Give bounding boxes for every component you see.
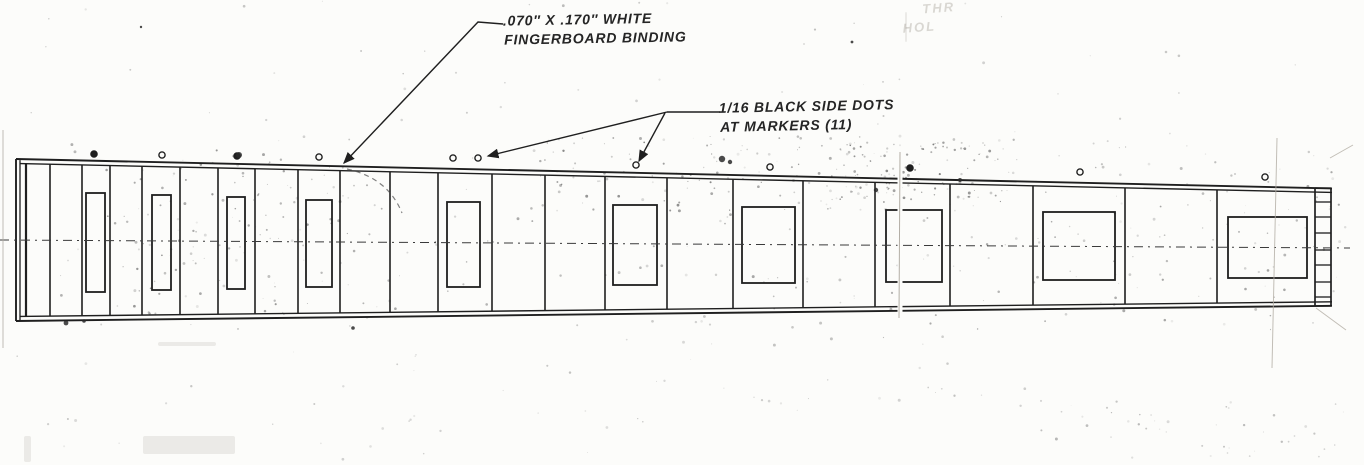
- side-dot: [450, 155, 456, 161]
- speck: [777, 161, 778, 162]
- speck: [768, 278, 769, 279]
- speck: [711, 343, 712, 344]
- speck: [888, 188, 889, 189]
- speck: [832, 199, 833, 200]
- speck: [990, 192, 993, 195]
- speck: [293, 352, 294, 353]
- speck: [826, 185, 827, 186]
- speck: [204, 234, 207, 237]
- speck: [703, 167, 704, 168]
- speck: [347, 233, 348, 234]
- speck: [1120, 202, 1122, 204]
- speck: [961, 142, 963, 144]
- speck: [1234, 173, 1236, 175]
- speck: [658, 79, 660, 81]
- speck: [599, 180, 601, 182]
- side-dots-leader-arrow-2: [639, 113, 665, 161]
- speck: [114, 222, 117, 225]
- speck: [729, 210, 730, 211]
- speck: [1338, 240, 1341, 243]
- speck: [1081, 416, 1083, 418]
- speck: [728, 191, 730, 193]
- speck: [260, 234, 261, 235]
- speck: [322, 281, 323, 282]
- speck: [838, 278, 841, 281]
- speck: [893, 189, 896, 192]
- speck: [693, 138, 694, 139]
- speck: [1165, 51, 1168, 54]
- speck: [946, 362, 949, 365]
- speck: [677, 204, 680, 207]
- side-dot: [1262, 174, 1268, 180]
- speck: [539, 160, 541, 162]
- speck: [278, 238, 279, 239]
- speck: [269, 161, 271, 163]
- speck: [577, 89, 579, 91]
- speck: [791, 166, 793, 168]
- inlay-marker: [227, 197, 245, 289]
- speck: [1119, 118, 1121, 120]
- speck: [138, 208, 139, 209]
- side-dot: [633, 162, 639, 168]
- speck: [853, 147, 856, 150]
- fingerboard-outline: [0, 159, 1350, 321]
- speck: [853, 170, 856, 173]
- speck: [529, 4, 530, 5]
- speck: [239, 246, 241, 248]
- speck: [462, 283, 464, 285]
- speck: [262, 153, 265, 156]
- speck: [898, 399, 901, 402]
- speck: [1243, 424, 1245, 426]
- speck: [274, 282, 275, 283]
- pencil-curve-mark: [347, 169, 402, 213]
- speck: [1283, 289, 1286, 292]
- speck: [1205, 153, 1206, 154]
- speck: [606, 426, 609, 429]
- speck: [846, 144, 847, 145]
- speck: [1214, 161, 1216, 163]
- speck: [934, 187, 936, 189]
- speck: [854, 155, 856, 157]
- speck: [740, 150, 741, 151]
- speck: [854, 142, 855, 143]
- speck: [846, 186, 847, 187]
- speck: [16, 355, 17, 356]
- speck: [921, 192, 922, 193]
- speck: [1283, 254, 1286, 257]
- speck: [182, 160, 183, 161]
- speck: [60, 275, 61, 276]
- speck: [742, 145, 743, 146]
- speck: [592, 208, 594, 210]
- speck: [914, 169, 916, 171]
- speck: [313, 403, 315, 405]
- speck: [1212, 239, 1214, 241]
- speck: [1154, 420, 1155, 421]
- speck: [31, 112, 32, 113]
- speck: [242, 176, 243, 177]
- speck: [553, 151, 554, 152]
- speck: [347, 197, 349, 199]
- speck: [161, 254, 163, 256]
- speck: [954, 210, 956, 212]
- speck: [983, 300, 984, 301]
- speck: [342, 458, 345, 461]
- speck: [1167, 420, 1170, 423]
- speck: [839, 198, 841, 200]
- speck: [274, 300, 276, 302]
- speck: [1209, 278, 1211, 280]
- speck: [353, 185, 355, 187]
- speck: [154, 281, 156, 283]
- speck: [408, 420, 409, 421]
- speck: [435, 244, 437, 246]
- speck: [1106, 407, 1108, 409]
- speck: [669, 210, 671, 212]
- speck: [921, 148, 923, 150]
- speck: [219, 280, 220, 281]
- ink-smudge: [851, 41, 854, 44]
- speck: [883, 155, 886, 158]
- speck: [687, 246, 688, 247]
- side-dots-leader-arrow-1: [488, 112, 667, 156]
- speck: [918, 367, 920, 369]
- paper-crease-line: [1272, 138, 1277, 368]
- board-binding-top-inner: [20, 164, 1332, 193]
- speck: [573, 168, 575, 170]
- speck: [265, 119, 267, 121]
- speck: [1180, 167, 1183, 170]
- speck: [1019, 405, 1021, 407]
- speck: [1145, 428, 1147, 430]
- speck: [177, 218, 179, 220]
- speck: [283, 170, 285, 172]
- speck: [1159, 429, 1160, 430]
- speck: [855, 185, 856, 186]
- speck: [971, 236, 973, 238]
- speck: [629, 154, 630, 155]
- speck: [903, 196, 906, 199]
- speck: [997, 159, 998, 160]
- photocopy-noise: [16, 1, 1346, 461]
- speck: [977, 197, 978, 198]
- speck: [836, 169, 837, 170]
- side-dot: [91, 151, 97, 157]
- speck: [606, 178, 609, 181]
- speck: [582, 203, 583, 204]
- speck: [840, 148, 842, 150]
- speck: [232, 217, 233, 218]
- speck: [455, 72, 457, 74]
- speck: [711, 153, 712, 154]
- speck: [682, 341, 685, 344]
- speck: [190, 385, 192, 387]
- speck: [923, 219, 926, 222]
- faint-smear: [24, 436, 31, 462]
- speck: [1070, 271, 1071, 272]
- speck: [653, 245, 655, 247]
- speck: [929, 322, 931, 324]
- speck: [681, 175, 684, 178]
- speck: [830, 207, 832, 209]
- speck: [263, 298, 264, 299]
- speck: [558, 191, 561, 194]
- speck: [797, 410, 798, 411]
- binding-annotation: .070″ X .170″ WHITE FINGERBOARD BINDING: [503, 8, 687, 50]
- speck: [777, 277, 778, 278]
- speck: [886, 147, 888, 149]
- speck: [1230, 174, 1232, 176]
- speck: [1150, 414, 1152, 416]
- speck: [711, 144, 712, 145]
- speck: [746, 149, 748, 151]
- speck: [926, 254, 929, 257]
- speck: [60, 294, 63, 297]
- speck: [582, 137, 583, 138]
- speck: [854, 298, 855, 299]
- speck: [572, 176, 574, 178]
- speck: [1270, 329, 1271, 330]
- speck: [129, 69, 131, 71]
- speck: [148, 311, 150, 313]
- markers-and-leaders: [3, 12, 1353, 462]
- speck: [784, 209, 785, 210]
- speck: [753, 397, 754, 398]
- speck: [919, 163, 921, 165]
- speck: [1304, 425, 1307, 428]
- speck: [353, 250, 356, 253]
- speck: [74, 150, 77, 153]
- speck: [1228, 407, 1230, 409]
- speck: [1210, 455, 1212, 457]
- speck: [1086, 424, 1089, 427]
- speck: [836, 197, 838, 199]
- speck: [311, 179, 313, 181]
- speck: [541, 204, 543, 206]
- speck: [1210, 200, 1211, 201]
- speck: [859, 136, 861, 138]
- speck: [196, 222, 198, 224]
- speck: [1054, 236, 1056, 238]
- speck: [413, 415, 415, 417]
- speck: [360, 50, 362, 52]
- speck: [978, 154, 979, 155]
- speck: [291, 239, 294, 242]
- speck: [891, 292, 893, 294]
- speck: [366, 184, 368, 186]
- speck: [1288, 441, 1290, 443]
- speck: [967, 168, 968, 169]
- speck: [409, 419, 411, 421]
- speck: [795, 287, 797, 289]
- speck: [85, 8, 87, 10]
- speck: [687, 188, 688, 189]
- speck: [678, 209, 681, 212]
- speck: [1166, 431, 1167, 432]
- speck: [195, 231, 197, 233]
- faint-corner-handwriting: THR HOL: [900, 0, 957, 38]
- speck: [1273, 414, 1276, 417]
- speck: [611, 156, 613, 158]
- speck: [195, 262, 197, 264]
- speck: [199, 292, 202, 295]
- speck: [493, 241, 494, 242]
- speck: [666, 2, 668, 4]
- speck: [517, 217, 520, 220]
- speck: [562, 4, 565, 7]
- speck: [1008, 172, 1009, 173]
- speck: [860, 146, 862, 148]
- speck: [537, 412, 539, 414]
- speck: [630, 158, 632, 160]
- inlay-marker: [447, 202, 480, 287]
- speck: [886, 192, 887, 193]
- speck: [48, 18, 50, 20]
- speck: [248, 224, 250, 226]
- speck: [882, 81, 884, 83]
- speck: [843, 164, 844, 165]
- speck: [906, 153, 908, 155]
- binding-leader-line: [344, 22, 503, 163]
- speck: [243, 5, 246, 8]
- speck: [988, 150, 991, 153]
- speck: [737, 153, 740, 156]
- speck: [1148, 163, 1151, 166]
- speck: [941, 388, 943, 390]
- speck: [612, 137, 614, 139]
- speck: [1229, 447, 1230, 448]
- faint-corner-line1: THR: [922, 0, 956, 18]
- speck: [1051, 221, 1053, 223]
- speck: [1071, 405, 1072, 406]
- speck: [848, 151, 851, 154]
- speck: [886, 151, 888, 153]
- speck: [1216, 424, 1217, 425]
- ink-smudge: [719, 156, 725, 162]
- speck: [123, 266, 124, 267]
- speck: [219, 244, 221, 246]
- speck: [1238, 231, 1240, 233]
- speck: [342, 385, 344, 387]
- speck: [133, 289, 136, 292]
- speck: [126, 221, 128, 223]
- speck: [926, 217, 928, 219]
- speck: [1005, 244, 1006, 245]
- speck: [119, 443, 120, 444]
- speck: [77, 248, 79, 250]
- speck: [780, 402, 782, 404]
- speck: [1036, 276, 1039, 279]
- speck: [556, 181, 558, 183]
- speck: [1132, 256, 1133, 257]
- speck: [190, 324, 191, 325]
- speck: [136, 268, 138, 270]
- speck: [342, 195, 343, 196]
- speck: [1312, 322, 1314, 324]
- speck: [1122, 309, 1125, 312]
- speck: [984, 145, 985, 146]
- speck: [662, 138, 665, 141]
- speck: [1198, 296, 1199, 297]
- speck: [865, 183, 868, 186]
- speck: [265, 215, 266, 216]
- speck: [597, 180, 599, 182]
- speck: [105, 169, 108, 172]
- speck: [713, 156, 715, 158]
- speck: [332, 186, 334, 188]
- speck: [864, 156, 866, 158]
- speck: [1333, 290, 1335, 292]
- speck: [322, 1, 323, 2]
- speck: [381, 427, 384, 430]
- speck: [757, 185, 760, 188]
- speck: [982, 142, 984, 144]
- speck: [1119, 220, 1122, 223]
- speck: [209, 112, 210, 113]
- speck: [1090, 55, 1091, 56]
- speck: [1335, 403, 1337, 405]
- speck: [348, 139, 350, 141]
- speck: [988, 257, 990, 259]
- speck: [932, 143, 934, 145]
- speck: [635, 100, 638, 103]
- speck: [211, 193, 213, 195]
- speck: [1305, 227, 1306, 228]
- board-edge-bottom-outer: [16, 306, 1332, 321]
- speck: [559, 184, 562, 187]
- speck: [1001, 190, 1002, 191]
- speck: [439, 430, 441, 432]
- speck: [709, 324, 711, 326]
- speck: [1244, 267, 1247, 270]
- speck: [85, 362, 88, 365]
- speck: [923, 259, 924, 260]
- side-dots-annotation-line1: 1/16 BLACK SIDE DOTS: [719, 95, 895, 118]
- speck: [716, 172, 719, 175]
- side-dot: [316, 154, 322, 160]
- speck: [806, 277, 809, 280]
- speck: [844, 256, 846, 258]
- speck: [648, 145, 650, 147]
- speck: [638, 2, 640, 4]
- speck: [1057, 93, 1058, 94]
- speck: [779, 195, 781, 197]
- speck: [1166, 260, 1168, 262]
- speck: [946, 159, 948, 161]
- speck: [1007, 190, 1008, 191]
- speck: [986, 156, 989, 159]
- speck: [403, 88, 406, 91]
- speck: [320, 443, 322, 445]
- speck: [863, 84, 864, 85]
- speck: [934, 194, 935, 195]
- ink-smudge: [874, 188, 878, 192]
- speck: [235, 259, 238, 262]
- speck: [278, 140, 279, 141]
- speck: [275, 303, 277, 305]
- speck: [960, 147, 962, 149]
- speck: [282, 216, 284, 218]
- speck: [147, 214, 149, 216]
- speck: [1278, 224, 1279, 225]
- speck: [652, 181, 654, 183]
- speck: [164, 272, 167, 275]
- speck: [1223, 323, 1226, 326]
- speck: [1023, 387, 1026, 390]
- speck: [1038, 241, 1040, 243]
- speck: [798, 164, 799, 165]
